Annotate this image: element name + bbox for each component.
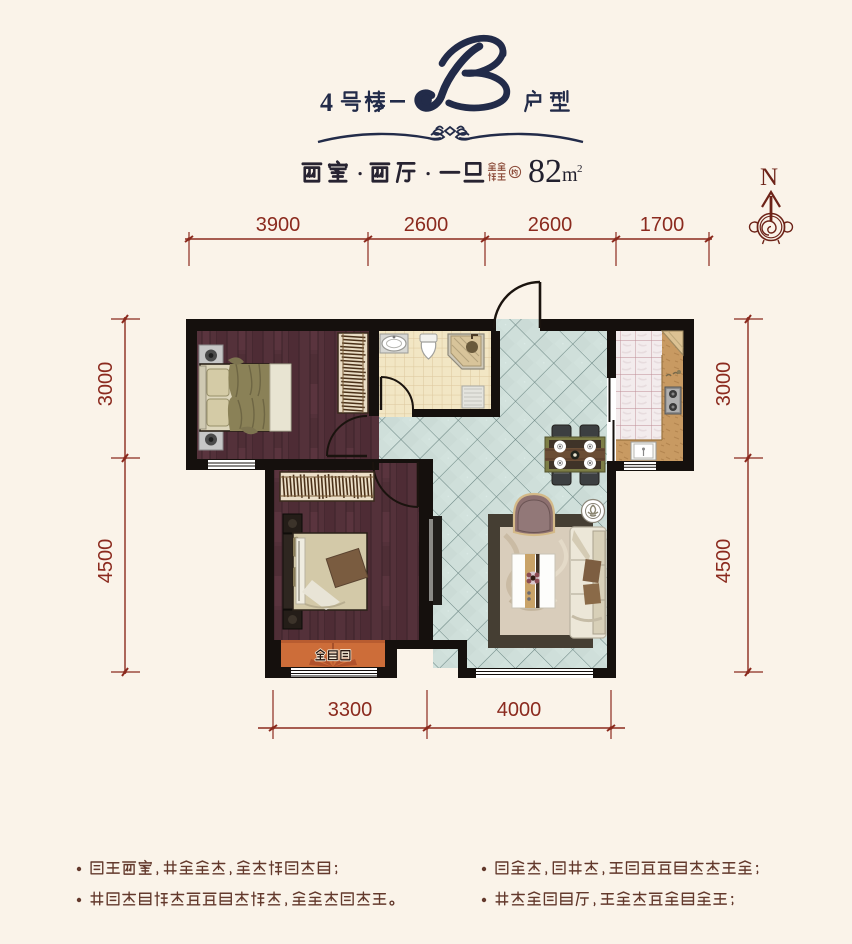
svg-text:3000: 3000 xyxy=(95,362,117,407)
svg-text:m: m xyxy=(562,164,578,186)
svg-text:2600: 2600 xyxy=(404,214,449,236)
svg-text:N: N xyxy=(760,164,778,191)
svg-text:3300: 3300 xyxy=(328,699,373,721)
svg-text:4: 4 xyxy=(320,88,333,117)
svg-text:82: 82 xyxy=(528,153,562,190)
svg-text:4500: 4500 xyxy=(95,539,117,584)
svg-text:1700: 1700 xyxy=(640,214,685,236)
svg-text:4000: 4000 xyxy=(497,699,542,721)
svg-text:2: 2 xyxy=(577,163,583,175)
svg-text:3900: 3900 xyxy=(256,214,301,236)
svg-text:3000: 3000 xyxy=(713,362,735,407)
svg-text:2600: 2600 xyxy=(528,214,573,236)
svg-text:4500: 4500 xyxy=(713,539,735,584)
